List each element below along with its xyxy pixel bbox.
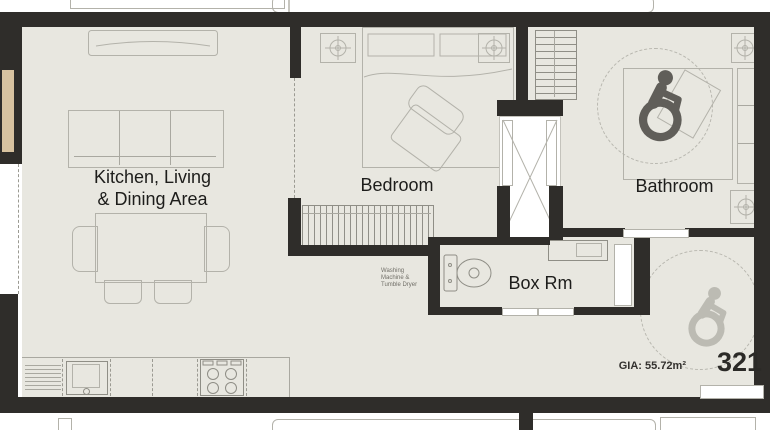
dining-chair-bottom (154, 280, 192, 304)
bathroom-panel-divider (738, 143, 755, 144)
unit-number: 321 (712, 347, 762, 378)
shaft-top-wall (497, 100, 563, 116)
wall-bottom (0, 397, 770, 413)
shaft-pillar-right (549, 186, 563, 240)
adjacent-unit-furniture-bottom-right (660, 417, 756, 430)
adjacent-unit-furniture-top-left (70, 0, 285, 9)
boxroom-label: Box Rm (478, 272, 603, 294)
boxroom-sink-basin (576, 243, 602, 257)
adjacent-unit-furniture-bottom-left (58, 418, 72, 430)
window-line-left (18, 164, 19, 294)
wardrobe-rail-line (303, 213, 431, 214)
balcony-door-panel (2, 70, 14, 152)
boxroom-door-panel (502, 308, 538, 316)
dining-chair-left (72, 226, 98, 272)
entrance-door (700, 385, 764, 399)
counter-divider (197, 359, 198, 396)
boxroom-top-wall (428, 237, 550, 245)
bathroom-door (623, 229, 689, 238)
sofa (88, 30, 218, 56)
bathroom-radiator (535, 30, 577, 100)
washing-note-line2: Machine & (381, 275, 427, 282)
kitchen-label: Kitchen, Living & Dining Area (55, 166, 250, 210)
boxroom-bottom-wall-right (574, 307, 634, 315)
boxroom-door-panel (538, 308, 574, 316)
boxroom-open-door-leaf (614, 244, 632, 306)
bedroom-right-wall (516, 27, 528, 102)
counter-divider (246, 359, 247, 396)
bedroom-bottom-wall (288, 245, 434, 256)
adjacent-unit-divider (288, 0, 290, 12)
wall-left-lower (0, 294, 18, 413)
stove (200, 359, 244, 396)
bathroom-bottom-wall-left (563, 228, 625, 237)
boxroom-right-wall (634, 237, 650, 315)
sideboard-shelf-line (74, 156, 216, 157)
dining-chair-bottom (104, 280, 142, 304)
kitchen-label-line1: Kitchen, Living (55, 166, 250, 188)
counter-end (289, 357, 290, 397)
sideboard (68, 110, 224, 168)
counter-divider (152, 359, 153, 396)
washing-note-line3: Tumble Dryer (381, 282, 427, 289)
shaft-frame-right (546, 120, 557, 186)
drainer (25, 362, 61, 392)
dining-table (95, 213, 207, 283)
washing-note-line1: Washing (381, 268, 427, 275)
washing-machine-note: Washing Machine & Tumble Dryer (381, 268, 427, 289)
bathroom-bottom-wall-right (685, 228, 756, 237)
dining-chair-right (204, 226, 230, 272)
partition-opening-line (294, 78, 295, 198)
gia-label: GIA: 55.72m² (596, 360, 686, 372)
kitchen-label-line2: & Dining Area (55, 188, 250, 210)
bathroom-panel-divider (738, 105, 755, 106)
wardrobe (302, 205, 434, 247)
partition-stub-lower (288, 198, 301, 248)
boxroom-left-wall (428, 237, 440, 315)
bathroom-radiator-center-line (554, 31, 555, 97)
counter-divider (110, 359, 111, 396)
adjacent-unit-wall-stub (519, 413, 533, 430)
shaft-frame-left (502, 120, 513, 186)
adjacent-unit-sofa-bottom (272, 419, 656, 430)
kitchen-sink-basin (72, 364, 100, 388)
shaft-pillar-left (497, 186, 510, 240)
bathroom-label: Bathroom (612, 175, 737, 197)
wall-top (0, 12, 770, 27)
counter-divider (62, 359, 63, 396)
floor-plan: Kitchen, Living & Dining Area (0, 0, 770, 430)
partition-stub-upper (290, 27, 301, 78)
kitchen-tap (83, 388, 90, 395)
boxroom-bottom-wall-left (428, 307, 502, 315)
counter-edge (22, 357, 290, 358)
ceiling-fixture-icon (320, 33, 356, 63)
bedroom-label: Bedroom (337, 174, 457, 196)
